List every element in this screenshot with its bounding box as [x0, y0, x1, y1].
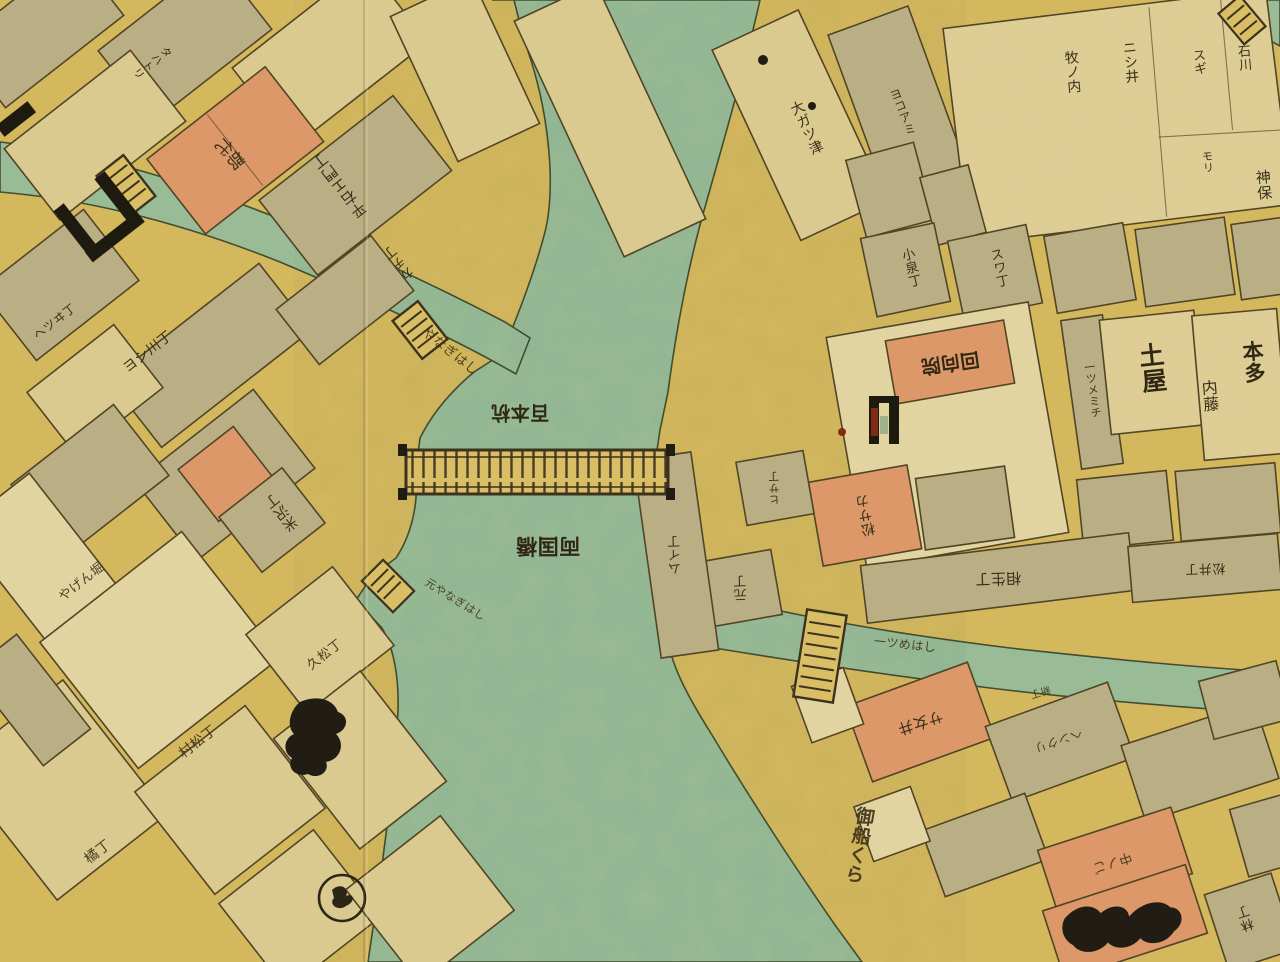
city-block	[1135, 217, 1235, 307]
label-hisacho: ヒサ丁	[767, 471, 781, 506]
label-sugi: スギ	[1189, 48, 1206, 76]
map-canvas: 平右エ門丁 郡代 タハトリ カヂ丁 やなぎはし ヨシ川丁 ヘツヰ丁 米沢丁 やげ…	[0, 0, 1280, 962]
label-aioicho: 相生丁	[974, 569, 1021, 589]
label-matsuicho: 松井丁	[1184, 560, 1225, 576]
dot-mark	[808, 102, 816, 110]
label-mori: モリ	[1200, 150, 1215, 174]
label-tsuchiya: 土屋	[1134, 341, 1168, 395]
label-hyappongui: 百本杭	[491, 402, 550, 425]
seal-dot-mark	[838, 428, 846, 436]
ryogoku-bashi-bridge	[398, 444, 675, 500]
city-block	[943, 0, 1280, 244]
label-ishikawa: 石川	[1234, 44, 1252, 72]
city-block	[915, 466, 1014, 550]
dot-mark	[758, 55, 768, 65]
city-block	[1044, 223, 1136, 314]
label-naito: 内藤	[1198, 379, 1220, 414]
label-motocho: 元丁	[734, 574, 750, 602]
woodblock-map: 平右エ門丁 郡代 タハトリ カヂ丁 やなぎはし ヨシ川丁 ヘツヰ丁 米沢丁 やげ…	[0, 0, 1280, 962]
label-honda: 本多	[1239, 339, 1267, 385]
label-muicho: ムイ丁	[667, 535, 684, 576]
city-block	[1175, 463, 1280, 541]
label-ryogokubashi: 両国橋	[515, 534, 580, 558]
label-jimbo: 神保	[1253, 169, 1274, 201]
